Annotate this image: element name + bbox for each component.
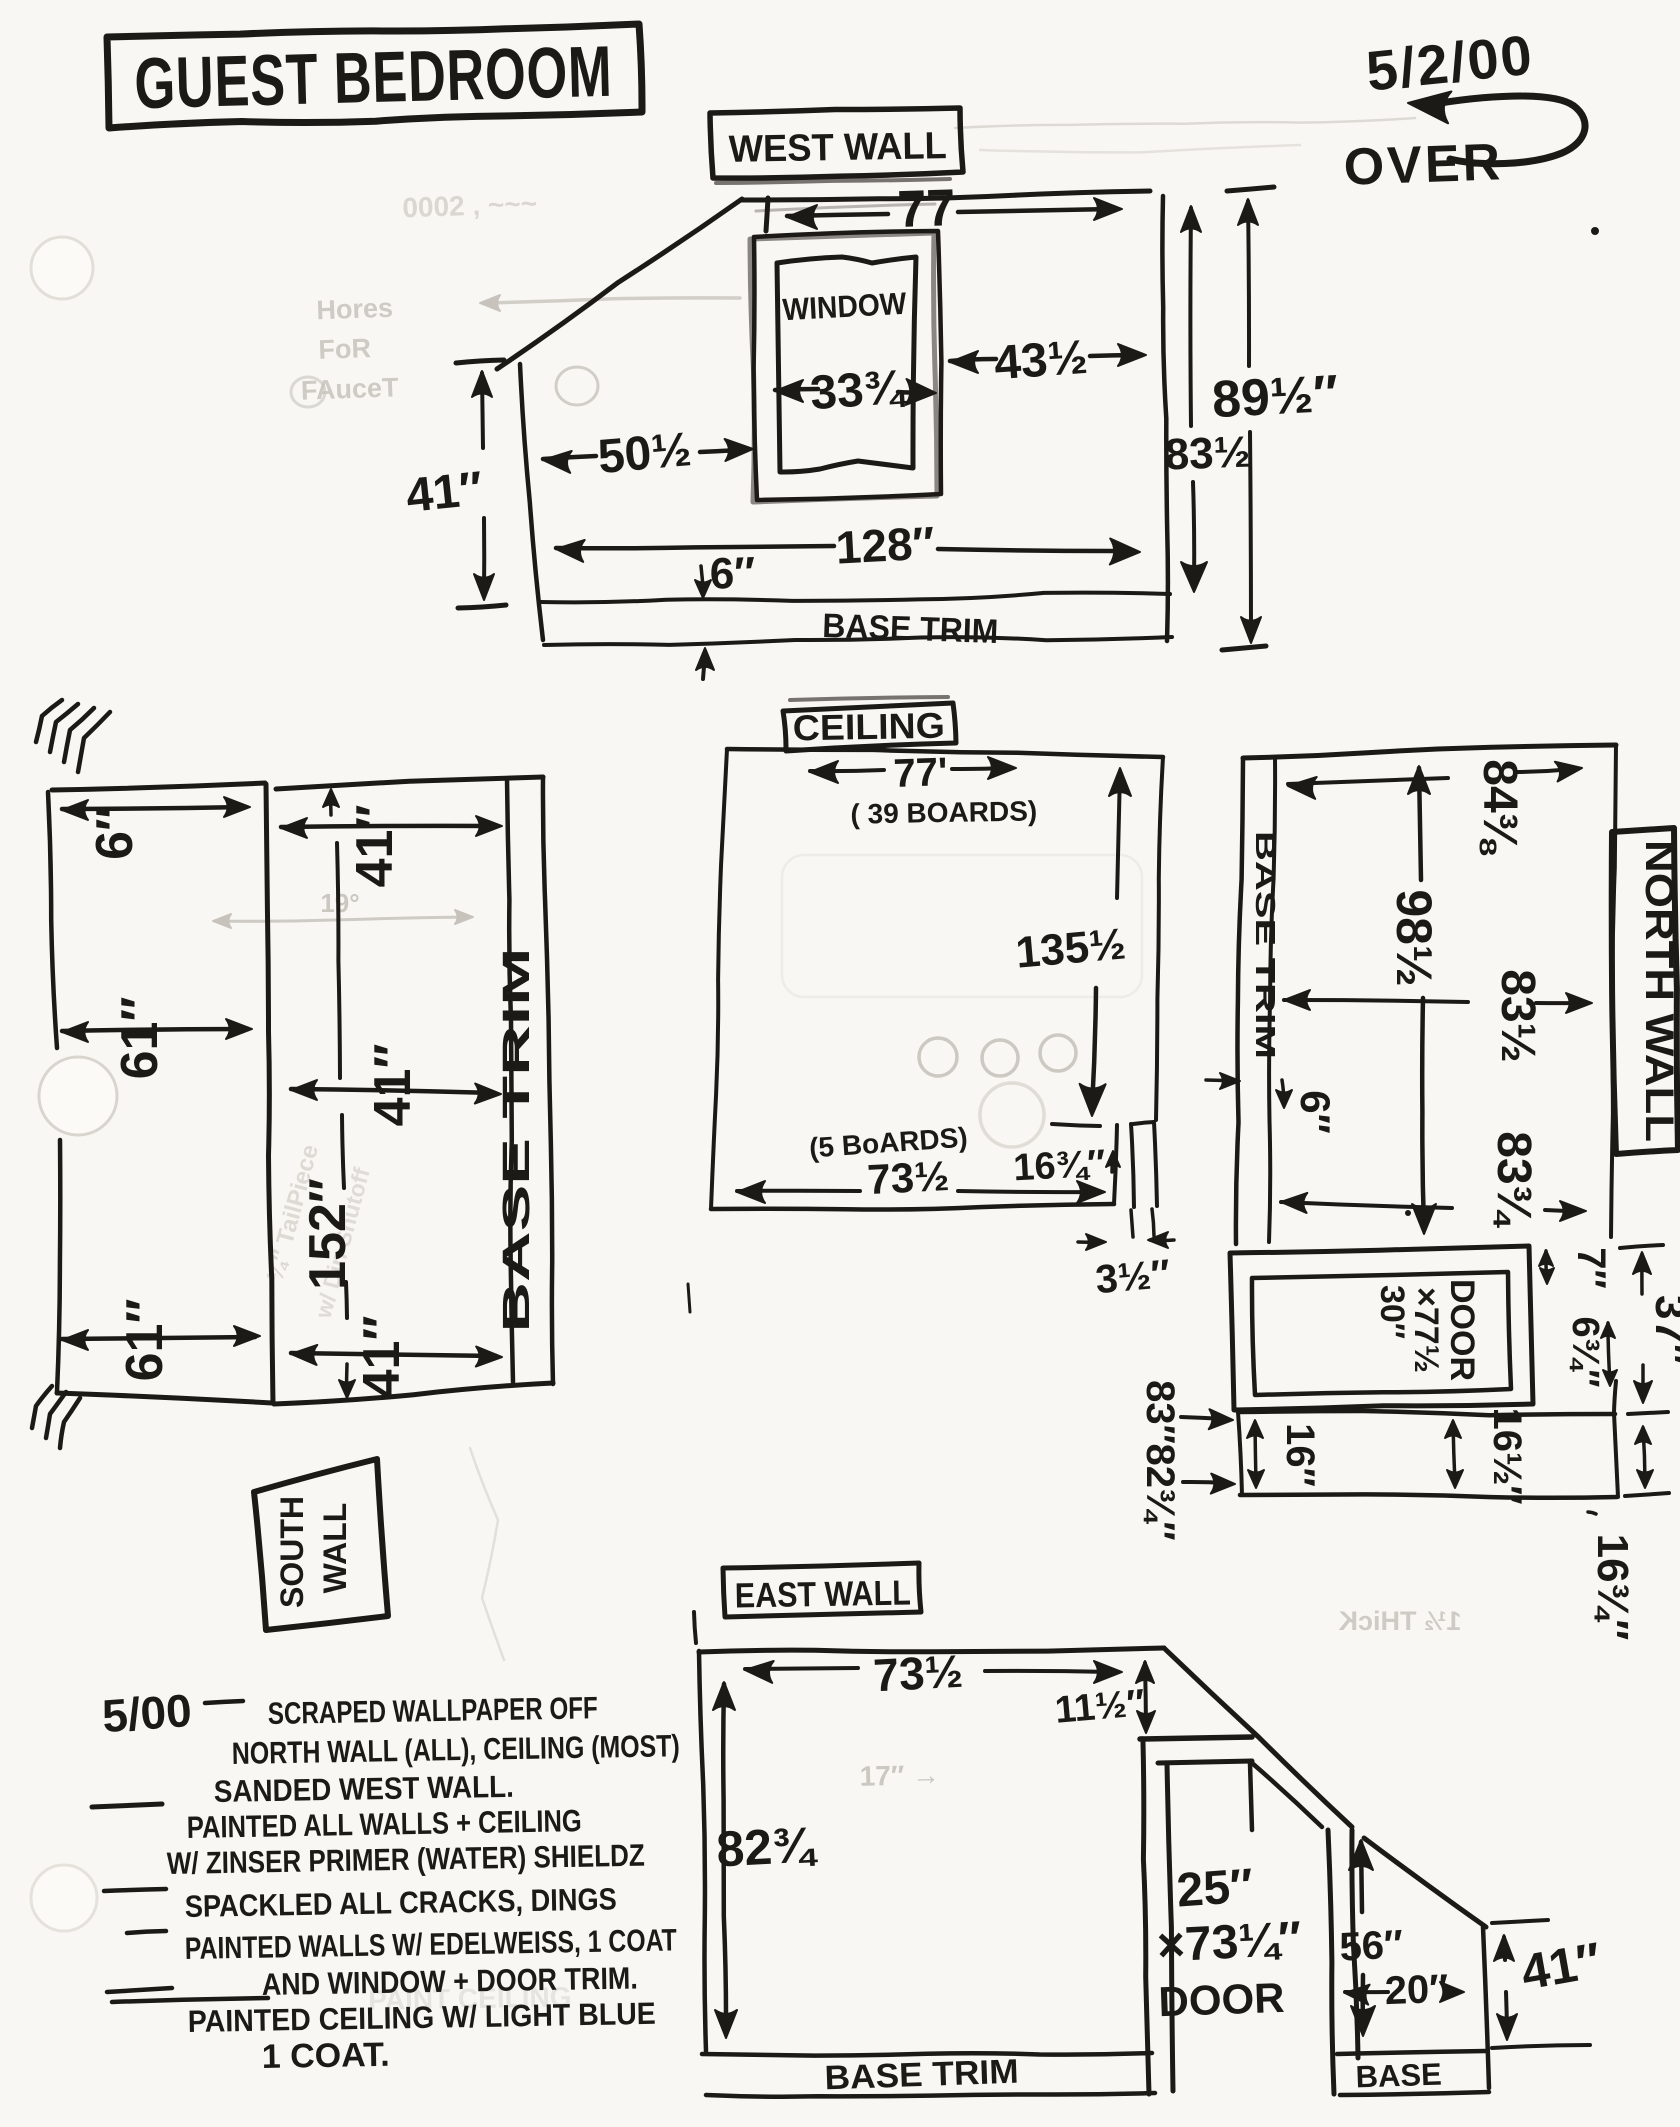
svg-text:1 COAT.: 1 COAT. bbox=[261, 2036, 389, 2076]
svg-text:77': 77' bbox=[893, 750, 949, 796]
svg-text:3½″: 3½″ bbox=[1094, 1252, 1172, 1302]
svg-text:GUEST BEDROOM: GUEST BEDROOM bbox=[133, 32, 613, 124]
svg-text:135½: 135½ bbox=[1014, 919, 1128, 977]
svg-text:NORTH WALL: NORTH WALL bbox=[1637, 840, 1680, 1142]
svg-text:61″: 61″ bbox=[111, 997, 169, 1080]
svg-text:OVER: OVER bbox=[1343, 133, 1504, 197]
svg-text:33¾: 33¾ bbox=[808, 361, 909, 421]
svg-text:43½: 43½ bbox=[992, 331, 1089, 390]
svg-text:5/00: 5/00 bbox=[100, 1684, 193, 1742]
svg-text:WINDOW: WINDOW bbox=[782, 286, 908, 327]
svg-text:CEILING: CEILING bbox=[792, 705, 945, 749]
svg-text:BASE: BASE bbox=[1355, 2057, 1442, 2095]
svg-text:37″: 37″ bbox=[1646, 1295, 1680, 1365]
svg-text:77: 77 bbox=[896, 179, 956, 239]
svg-text:30″: 30″ bbox=[1373, 1285, 1411, 1339]
svg-text:DOOR: DOOR bbox=[1443, 1279, 1481, 1381]
svg-text:16½″: 16½″ bbox=[1485, 1407, 1529, 1504]
svg-text:83½: 83½ bbox=[1164, 428, 1251, 480]
svg-text:0002 , ~~~: 0002 , ~~~ bbox=[402, 188, 538, 224]
svg-text:16″: 16″ bbox=[1278, 1423, 1322, 1487]
svg-text:82¾: 82¾ bbox=[715, 1816, 819, 1877]
svg-text:152″: 152″ bbox=[299, 1178, 357, 1290]
svg-text:BASE TRIM: BASE TRIM bbox=[496, 948, 538, 1333]
svg-text:6″: 6″ bbox=[86, 806, 144, 860]
svg-text:×77½: ×77½ bbox=[1407, 1287, 1445, 1373]
svg-text:AND WINDOW + DOOR TRIM.: AND WINDOW + DOOR TRIM. bbox=[262, 1960, 639, 2002]
svg-text:128″: 128″ bbox=[834, 516, 935, 573]
svg-text:1½ THicK: 1½ THicK bbox=[1338, 1606, 1462, 1636]
svg-text:83¾: 83¾ bbox=[1487, 1131, 1540, 1228]
svg-text:6″: 6″ bbox=[709, 548, 756, 599]
svg-text:41″: 41″ bbox=[364, 1044, 422, 1127]
svg-text:WEST WALL: WEST WALL bbox=[728, 125, 947, 171]
svg-text:Hores: Hores bbox=[316, 293, 394, 326]
svg-text:41″: 41″ bbox=[404, 462, 486, 523]
svg-text:BASE TRIM: BASE TRIM bbox=[824, 2053, 1019, 2098]
svg-text:73½: 73½ bbox=[872, 1645, 964, 1702]
svg-text:6¾″: 6¾″ bbox=[1564, 1316, 1606, 1387]
svg-text:6″: 6″ bbox=[1292, 1090, 1339, 1133]
svg-text:41″: 41″ bbox=[346, 805, 404, 888]
svg-text:SANDED WEST WALL.: SANDED WEST WALL. bbox=[214, 1769, 515, 1809]
svg-text:89½″: 89½″ bbox=[1211, 365, 1340, 430]
svg-text:WALL: WALL bbox=[317, 1503, 353, 1594]
svg-text:73½: 73½ bbox=[866, 1152, 950, 1203]
svg-text:98½: 98½ bbox=[1386, 889, 1442, 986]
svg-text:BASE TRIM: BASE TRIM bbox=[822, 607, 999, 651]
svg-text:41″: 41″ bbox=[353, 1316, 411, 1399]
svg-text:DOOR: DOOR bbox=[1158, 1974, 1286, 2025]
svg-text:25″: 25″ bbox=[1175, 1859, 1255, 1917]
svg-text:×73¼″: ×73¼″ bbox=[1156, 1912, 1303, 1972]
svg-text:17″ →: 17″ → bbox=[859, 1759, 940, 1791]
svg-text:11½″: 11½″ bbox=[1053, 1682, 1146, 1732]
svg-text:BASE TRIM: BASE TRIM bbox=[1250, 831, 1281, 1059]
svg-text:16¾″: 16¾″ bbox=[1012, 1143, 1106, 1190]
svg-text:82¾″: 82¾″ bbox=[1138, 1443, 1182, 1540]
svg-text:SCRAPED WALLPAPER OFF: SCRAPED WALLPAPER OFF bbox=[268, 1690, 599, 1731]
svg-text:PAINTED ALL WALLS + CEILING: PAINTED ALL WALLS + CEILING bbox=[187, 1803, 583, 1845]
svg-text:7″: 7″ bbox=[1569, 1247, 1613, 1288]
svg-text:61″: 61″ bbox=[116, 1299, 174, 1382]
svg-text:16¾″: 16¾″ bbox=[1588, 1534, 1637, 1641]
svg-text:( 39 BOARDS): ( 39 BOARDS) bbox=[850, 795, 1037, 829]
svg-text:SOUTH: SOUTH bbox=[274, 1496, 310, 1608]
svg-text:83½: 83½ bbox=[1491, 969, 1544, 1062]
svg-text:83″: 83″ bbox=[1138, 1380, 1182, 1444]
svg-text:50½: 50½ bbox=[596, 423, 694, 484]
svg-text:FoR: FoR bbox=[318, 333, 371, 365]
svg-text:20″: 20″ bbox=[1384, 1967, 1449, 2013]
svg-text:56″: 56″ bbox=[1338, 1922, 1404, 1969]
svg-text:EAST WALL: EAST WALL bbox=[734, 1573, 911, 1615]
